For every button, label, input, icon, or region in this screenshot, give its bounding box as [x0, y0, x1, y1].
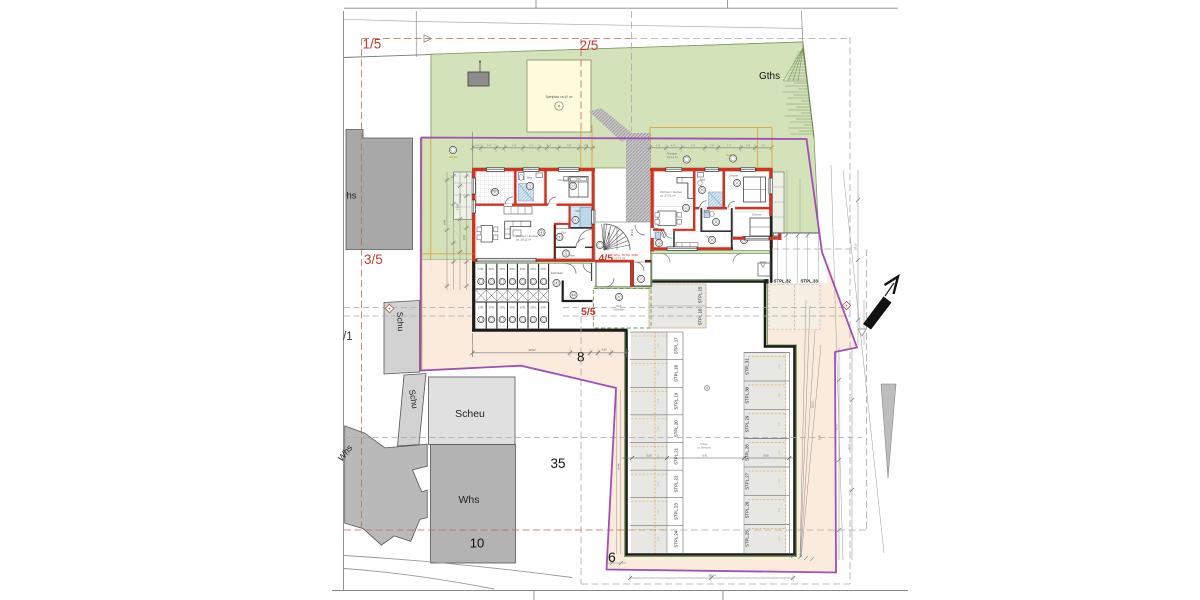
svg-text:ca. 12 m²: ca. 12 m² [667, 155, 678, 159]
svg-text:STPL: STPL [499, 307, 506, 310]
svg-text:M 1:0: M 1:0 [630, 229, 634, 236]
svg-text:2/5: 2/5 [580, 38, 599, 53]
svg-text:STPL.17: STPL.17 [674, 337, 679, 354]
svg-text:10: 10 [572, 293, 576, 297]
svg-text:STPL: STPL [509, 307, 516, 310]
svg-text:26,44: 26,44 [617, 463, 621, 470]
svg-text:STPL: STPL [509, 268, 516, 271]
svg-text:STPL: STPL [520, 268, 527, 271]
svg-text:13,95: 13,95 [456, 203, 460, 210]
svg-text:STPL.25: STPL.25 [745, 530, 750, 547]
svg-text:STPL.28: STPL.28 [745, 444, 750, 461]
svg-text:GZ73,03: GZ73,03 [614, 257, 626, 261]
svg-text:Zimmer: Zimmer [729, 174, 739, 178]
svg-text:STPL.29: STPL.29 [745, 415, 750, 432]
svg-text:ca. Bestand: ca. Bestand [697, 446, 711, 450]
svg-text:STPL.20: STPL.20 [674, 420, 679, 437]
svg-text:STPL: STPL [489, 307, 496, 310]
svg-text:STPL: STPL [530, 307, 537, 310]
svg-text:16,00: 16,00 [811, 401, 815, 408]
svg-text:STPL.33: STPL.33 [801, 279, 819, 284]
svg-text:STPL.32: STPL.32 [774, 279, 792, 284]
svg-text:STPL: STPL [499, 268, 506, 271]
svg-text:STPL.23: STPL.23 [674, 503, 679, 520]
svg-text:Flur: Flur [561, 231, 566, 235]
svg-text:Whs: Whs [459, 494, 480, 506]
svg-text:STPL: STPL [489, 268, 496, 271]
svg-text:Wiese: Wiese [700, 442, 708, 446]
svg-text:6: 6 [608, 549, 616, 565]
svg-text:ca. 28,11 m²: ca. 28,11 m² [516, 237, 531, 241]
svg-text:1/5: 1/5 [363, 37, 382, 52]
svg-text:35,04: 35,04 [708, 574, 716, 578]
svg-text:Bad: Bad [527, 176, 532, 180]
svg-text:3,62: 3,62 [462, 234, 466, 240]
svg-text:5,00: 5,00 [763, 454, 769, 458]
svg-text:3/5: 3/5 [364, 252, 383, 267]
svg-text:STPL: STPL [541, 268, 548, 271]
svg-text:Zimmer: Zimmer [558, 178, 568, 182]
svg-text:Spielplatz ca 40 m²: Spielplatz ca 40 m² [545, 95, 572, 99]
svg-text:STPL: STPL [530, 268, 537, 271]
svg-text:STPL: STPL [520, 307, 527, 310]
svg-text:STPL.19: STPL.19 [674, 392, 679, 409]
svg-text:Fahrräder: Fahrräder [613, 307, 625, 311]
svg-text:STPL.16: STPL.16 [698, 308, 703, 325]
svg-text:STPL.30: STPL.30 [745, 386, 750, 403]
svg-text:10: 10 [470, 536, 484, 551]
svg-text:Bad: Bad [704, 210, 709, 214]
svg-text:Zimmer: Zimmer [490, 189, 500, 193]
svg-text:STPL: STPL [478, 268, 485, 271]
svg-text:WC: WC [576, 209, 581, 213]
svg-text:Abst.: Abst. [569, 254, 576, 258]
svg-text:STPL.18: STPL.18 [674, 364, 679, 381]
svg-text:6,41: 6,41 [702, 454, 708, 458]
svg-text:hs: hs [347, 191, 357, 202]
svg-text:4,50: 4,50 [601, 348, 607, 352]
svg-text:20,02: 20,02 [848, 443, 852, 450]
svg-text:Scheu: Scheu [455, 408, 485, 420]
svg-text:STPL.22: STPL.22 [674, 475, 679, 492]
svg-text:ca. 27,51 m²: ca. 27,51 m² [660, 193, 676, 197]
svg-text:Zimmer: Zimmer [752, 213, 762, 217]
svg-text:STPL.27: STPL.27 [745, 472, 750, 489]
svg-text:4/5: 4/5 [599, 253, 614, 265]
svg-text:STPL.24: STPL.24 [674, 530, 679, 547]
svg-text:19,97: 19,97 [528, 348, 536, 352]
svg-text:/1: /1 [343, 331, 353, 343]
svg-text:Flur: Flur [705, 235, 710, 239]
svg-text:Fahrräder: Fahrräder [551, 271, 563, 275]
svg-text:5,00: 5,00 [646, 454, 652, 458]
svg-text:STPL: STPL [541, 307, 548, 310]
svg-text:STPL.31: STPL.31 [745, 358, 750, 375]
svg-text:Bad: Bad [700, 178, 705, 182]
svg-text:Schu: Schu [395, 312, 406, 332]
svg-text:STPL: STPL [478, 307, 485, 310]
svg-text:35: 35 [550, 456, 565, 471]
svg-text:STPL.15: STPL.15 [698, 286, 703, 303]
svg-text:18,10: 18,10 [854, 243, 858, 250]
svg-text:STPL.21: STPL.21 [674, 447, 679, 464]
svg-text:Garten: Garten [449, 155, 459, 159]
svg-text:4,46: 4,46 [443, 219, 447, 225]
svg-text:Gths: Gths [759, 71, 780, 82]
svg-text:STPL.26: STPL.26 [745, 501, 750, 518]
